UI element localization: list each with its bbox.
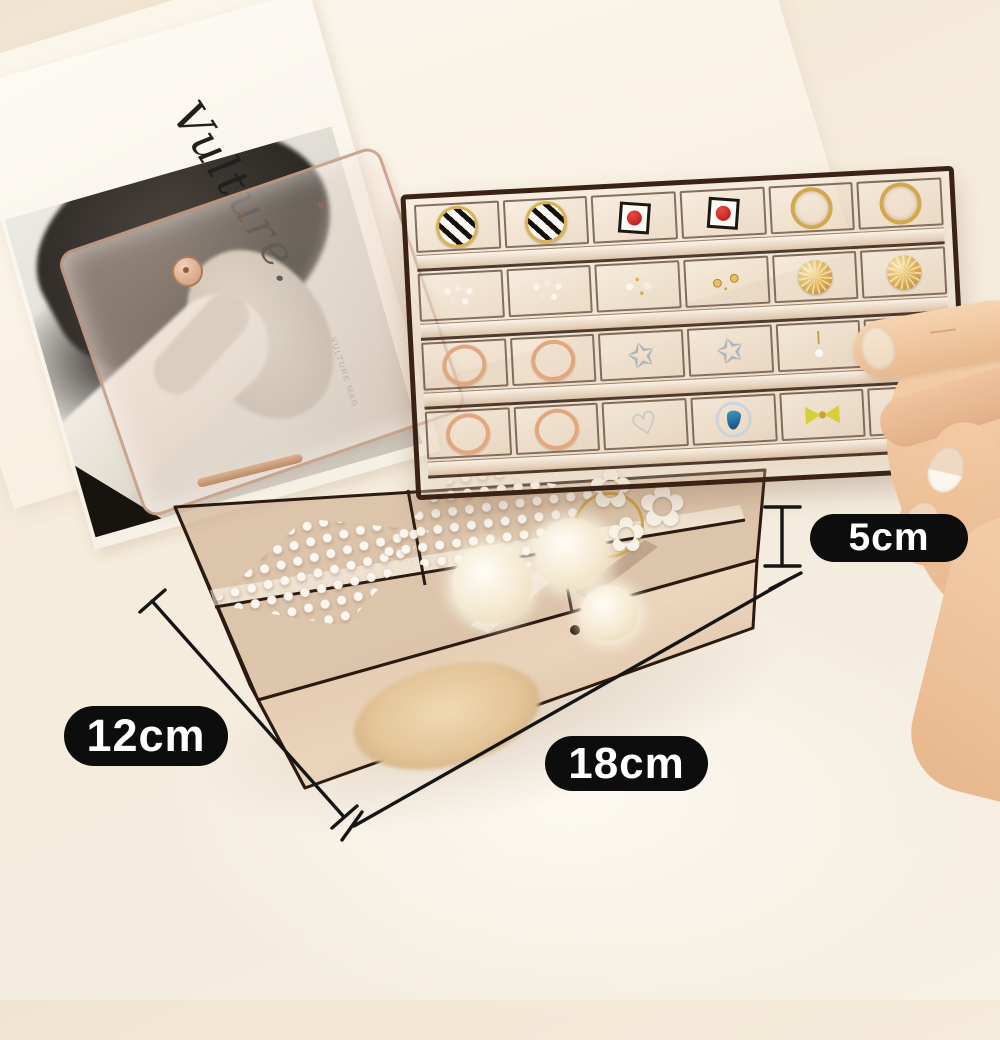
gold-wire-ball-earrings — [797, 259, 833, 295]
clasp-dot — [570, 625, 580, 635]
lid-hinge-knob — [172, 256, 203, 287]
pearl-cluster-earrings — [440, 281, 481, 311]
blue-gem-earrings — [715, 401, 753, 439]
red-square-stud-earrings — [618, 201, 651, 234]
compartment-pearl-cluster — [506, 265, 593, 317]
compartment-silver-heart — [602, 398, 689, 450]
compartment-gold-hoop — [768, 182, 855, 234]
pearl-drop-earrings — [808, 329, 830, 364]
gold-hoop-earrings — [878, 181, 922, 225]
rose-gold-hoop-earrings — [528, 336, 579, 385]
silver-star-earrings — [627, 336, 656, 375]
compartment-silver-star — [687, 324, 774, 376]
flower-hair-tie: ✿ — [606, 512, 646, 560]
rose-gold-hoop-earrings — [443, 409, 494, 458]
compartment-pearl-drop — [775, 320, 862, 372]
fur-pompom — [452, 545, 532, 623]
compartment-blue-gem — [690, 393, 777, 445]
compartment-yellow-bow — [779, 389, 866, 441]
compartment-red-square-stud — [680, 187, 767, 239]
compartment-rose-gold-hoop — [513, 403, 600, 455]
width-size-badge: 12cm — [64, 706, 228, 766]
rose-gold-hoop-earrings — [439, 340, 490, 389]
gold-studs-earrings — [709, 269, 744, 295]
compartment-gold-studs — [683, 256, 770, 308]
fur-pompom — [535, 518, 609, 590]
product-photo: { "product_photo": { "magazine": { "mast… — [0, 0, 1000, 1000]
gold-wire-ball-earrings — [886, 255, 922, 291]
rose-gold-hoop-earrings — [531, 405, 582, 454]
pearl-studs-earrings — [620, 273, 657, 299]
compartment-silver-star — [598, 329, 685, 381]
compartment-pearl-studs — [595, 260, 682, 312]
compartment-pearl-cluster — [418, 269, 505, 321]
gold-hoop-earrings — [790, 186, 834, 230]
red-square-stud-earrings — [707, 196, 740, 229]
lid-screw — [238, 208, 246, 216]
compartment-red-square-stud — [591, 191, 678, 243]
silver-star-earrings — [716, 331, 745, 370]
height-size-badge: 5cm — [810, 514, 968, 562]
yellow-bow-earrings — [805, 405, 840, 425]
silver-heart-earrings — [631, 406, 660, 442]
compartment-gold-wire-ball — [860, 246, 947, 298]
compartment-striped-hoop — [502, 196, 589, 248]
striped-hoop-earrings — [435, 205, 479, 249]
fur-pompom — [580, 585, 638, 641]
compartment-gold-wire-ball — [772, 251, 859, 303]
compartment-striped-hoop — [414, 201, 501, 253]
lid-screw — [317, 201, 325, 209]
compartment-gold-hoop — [857, 177, 944, 229]
compartment-rose-gold-hoop — [425, 407, 512, 459]
length-size-badge: 18cm — [545, 736, 708, 791]
compartment-rose-gold-hoop — [510, 334, 597, 386]
pearl-cluster-earrings — [529, 276, 570, 306]
striped-hoop-earrings — [524, 200, 568, 244]
compartment-rose-gold-hoop — [421, 338, 508, 390]
